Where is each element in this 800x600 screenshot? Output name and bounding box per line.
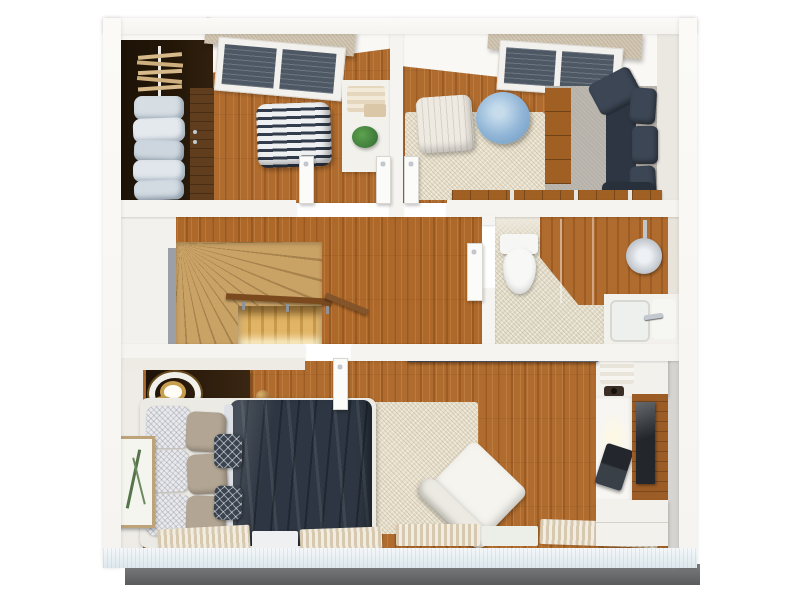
- sofa-back-cushion: [629, 87, 657, 125]
- door-handle: [409, 162, 413, 166]
- dressing-door-leaf: [376, 156, 391, 204]
- door-handle: [338, 365, 342, 369]
- white-floor-panel: [482, 526, 538, 546]
- outer-wall-bottom: [103, 548, 697, 568]
- wall-bathroom-west-top: [482, 215, 495, 225]
- towel-stack: [600, 360, 634, 384]
- bathroom-door-leaf: [467, 243, 483, 301]
- toilet-bowl: [503, 248, 536, 294]
- sofa-back-cushion: [632, 126, 658, 164]
- handrail-bracket: [242, 302, 245, 310]
- white-ottoman: [415, 94, 475, 154]
- handrail-bracket: [286, 304, 289, 312]
- pillow-accent: [214, 434, 242, 468]
- window-glass-pane: [504, 47, 556, 86]
- chevron-pouf: [256, 102, 332, 169]
- door-handle: [381, 162, 385, 166]
- navy-corner-sofa: [592, 72, 658, 208]
- wall-bedroom-north-right: [352, 344, 679, 361]
- window-glass-pane: [221, 44, 276, 88]
- wardrobe-handle: [193, 130, 197, 134]
- wall-divider-top-rooms: [390, 18, 403, 217]
- window-glass-pane: [279, 49, 336, 94]
- rain-shower-head: [626, 238, 662, 274]
- framed-botanical-art: [117, 436, 155, 528]
- potted-plant: [352, 126, 378, 148]
- stairwell-opening: [238, 306, 322, 344]
- outer-wall-right: [679, 18, 697, 568]
- floor-plan-render: [0, 0, 800, 600]
- storage-box: [364, 104, 386, 117]
- striped-radiator-mat: [396, 524, 480, 546]
- bedroom-east-wall-face: [668, 348, 679, 551]
- shower-glass-line: [560, 219, 562, 303]
- wardrobe-handle: [193, 140, 197, 144]
- shower-glass-line: [592, 217, 594, 305]
- white-floor-panel: [252, 531, 298, 549]
- lounge-door-leaf: [404, 156, 419, 204]
- bed: [140, 398, 376, 548]
- door-handle: [304, 162, 308, 166]
- stair-west-wall: [168, 248, 176, 344]
- handrail-bracket: [326, 306, 329, 314]
- bedroom-door-leaf: [333, 358, 348, 410]
- wall-bedroom-north-left-face: [121, 358, 305, 370]
- bathroom-vanity: [604, 294, 680, 344]
- sink-basin: [610, 300, 650, 342]
- blue-pouf: [476, 92, 530, 144]
- desk-lower-cabinet: [596, 500, 668, 546]
- pillow-accent: [213, 485, 243, 520]
- wardrobe-door-panel: [190, 88, 214, 203]
- outer-wall-left: [103, 18, 121, 568]
- drawer-seam: [596, 522, 668, 523]
- duvet-navy: [230, 400, 372, 546]
- sink-basin: [652, 299, 676, 339]
- camera-lens: [611, 388, 617, 394]
- door-handle: [472, 250, 476, 254]
- wall-top-rooms-south-left: [121, 200, 296, 217]
- lounge-east-wall-face: [657, 33, 679, 203]
- toilet: [498, 234, 540, 296]
- desk-surface: [596, 396, 634, 502]
- lounge-wood-dresser: [545, 88, 571, 184]
- wall-bathroom-west-bottom: [482, 288, 495, 346]
- dressing-window: [214, 37, 346, 102]
- tv-screen: [636, 402, 655, 484]
- dressing-door-leaf: [299, 156, 314, 204]
- hanging-clothes: [134, 179, 185, 201]
- outer-wall-top: [103, 18, 697, 34]
